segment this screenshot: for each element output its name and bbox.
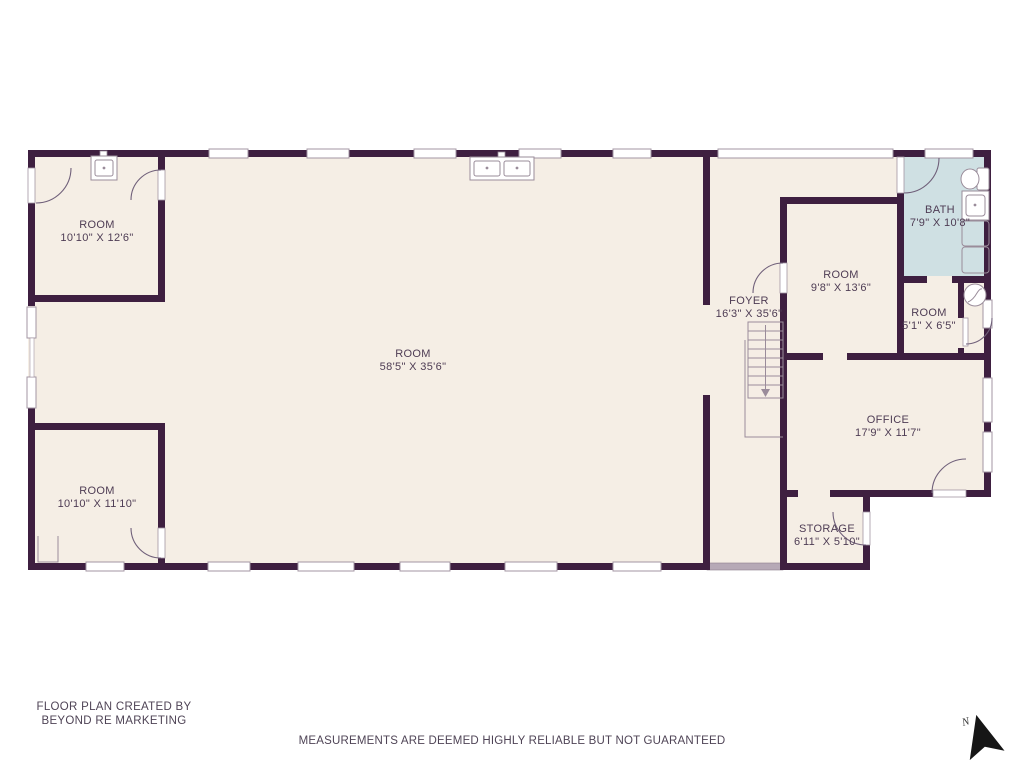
floor-plan-page: N ROOM 10'10" X 12'6" ROOM 58'5" X 35'6"… (0, 0, 1024, 768)
entry-door (707, 563, 783, 570)
toilet-fixture (961, 168, 989, 190)
credit-text: FLOOR PLAN CREATED BY BEYOND RE MARKETIN… (37, 700, 192, 728)
credit-line-1: FLOOR PLAN CREATED BY (37, 700, 192, 714)
floor-plan-drawing: N (0, 0, 1024, 768)
north-arrow-icon: N (959, 710, 1005, 760)
bathroom-sink-fixture (962, 191, 989, 220)
disclaimer-text: MEASUREMENTS ARE DEEMED HIGHLY RELIABLE … (299, 735, 726, 747)
credit-line-2: BEYOND RE MARKETING (37, 714, 192, 728)
compass-n-label: N (960, 715, 972, 729)
water-heater-fixture (964, 284, 986, 306)
floor-base (28, 150, 991, 570)
